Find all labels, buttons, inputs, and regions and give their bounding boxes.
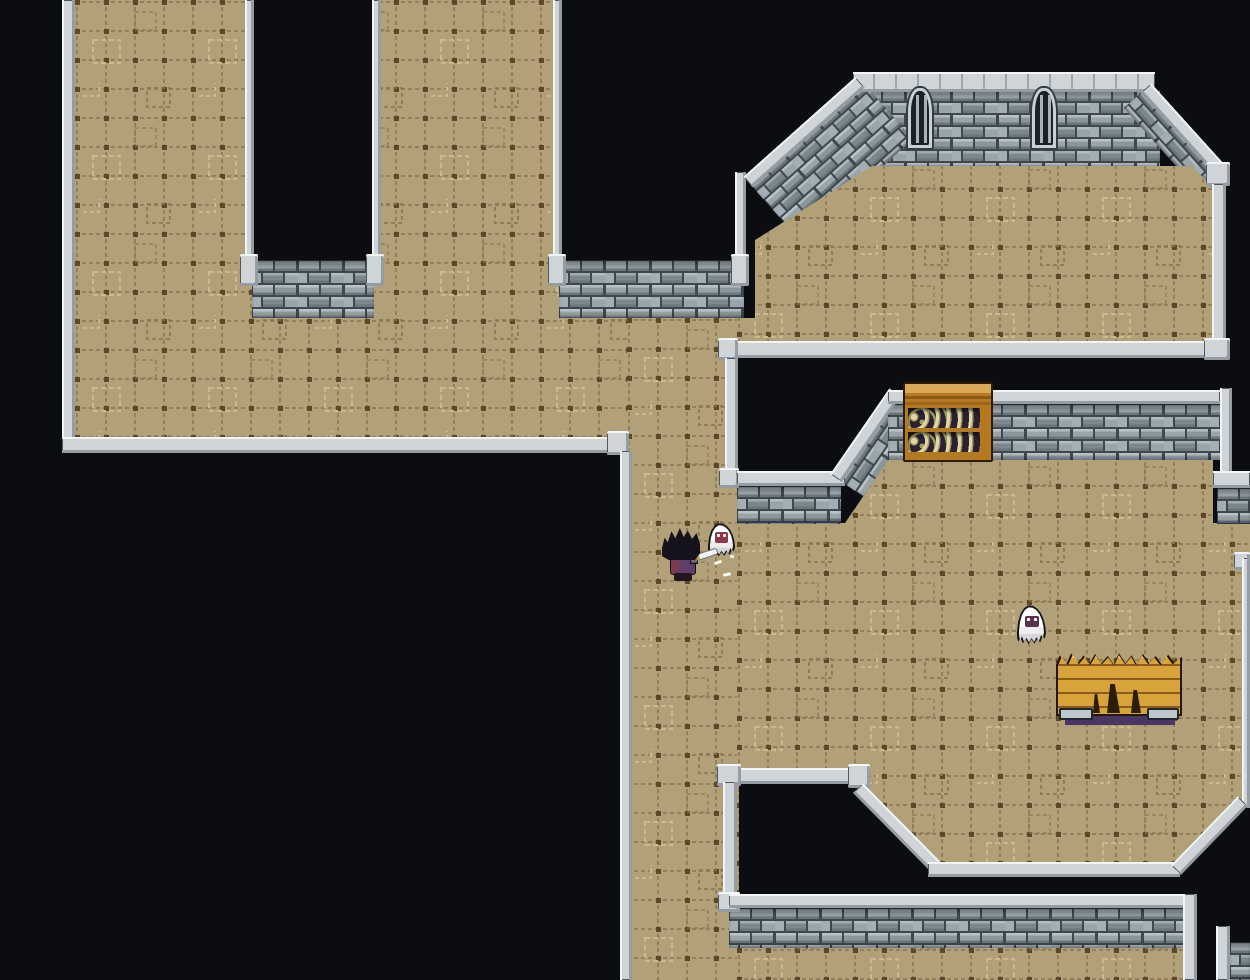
cap-neroom-south [725, 341, 1213, 358]
ghost-face [1025, 616, 1039, 627]
player-hair [662, 528, 700, 560]
wall-east-edge-face [1217, 488, 1250, 524]
cap-north-wall [853, 72, 1155, 92]
game-viewport[interactable] [0, 0, 1250, 980]
broken-table[interactable] [1055, 650, 1185, 732]
table-foot-left [1059, 708, 1093, 720]
player-legs [674, 573, 692, 581]
ghost-eye [717, 534, 720, 537]
ghost-eye [1034, 618, 1037, 621]
window-bar [924, 95, 927, 143]
pillar-west-corner-left [240, 254, 258, 286]
pillar-mid-cap-left [553, 0, 562, 262]
cap-east-wall-upper [1212, 184, 1226, 342]
cap-corridor-west [620, 451, 632, 980]
cap-east-edge-lower [1242, 558, 1250, 808]
cap-pit-northeast-corner [848, 764, 870, 788]
cap-south-wall-right [1183, 894, 1197, 980]
cap-south-wall [729, 894, 1191, 908]
slash-particle [730, 555, 734, 558]
pillar-west-cap-right [372, 0, 381, 262]
wall-south-face [729, 908, 1187, 948]
cap-corridor-east-wall [737, 471, 845, 486]
pillar-west-cap-left [245, 0, 254, 262]
cap-northeast-corner [1206, 162, 1230, 186]
shelf-groove [905, 402, 991, 405]
pillar-mid-cap-right [735, 172, 746, 264]
shelf-row-skulls-bottom [908, 432, 980, 452]
cap-pit-west [723, 782, 737, 900]
cap-westhall-south [62, 437, 624, 453]
pillar-west-void [245, 0, 381, 262]
pillar-mid-corner-left [548, 254, 566, 286]
pillar-mid-void [553, 0, 744, 262]
barred-window-2 [1030, 86, 1058, 150]
pillar-west-corner-right [366, 254, 384, 286]
table-foot-right [1147, 708, 1179, 720]
wall-corridor-east-face [737, 486, 841, 524]
ghost-eye [1027, 618, 1030, 621]
pillar-mid-corner-right [731, 254, 749, 286]
shelf-groove [905, 396, 991, 399]
pillar-mid-face [559, 260, 744, 318]
window-bar [916, 95, 919, 143]
shelf-lintel [905, 384, 991, 393]
wall-southeast-corner-face [1230, 942, 1250, 980]
cap-neroom-south-corner-right [1204, 338, 1230, 360]
cap-west-edge [62, 0, 75, 440]
window-opening [911, 91, 929, 145]
ghost-face [715, 532, 728, 543]
pillar-west-face [252, 260, 374, 318]
ghost-enemy[interactable] [1017, 605, 1046, 645]
window-opening [1035, 91, 1053, 145]
cap-east-edge-wall [1213, 471, 1250, 488]
table-planks [1058, 652, 1180, 714]
cap-shelfroom-north-right [1220, 388, 1232, 473]
cap-neroom-south-corner-left [718, 338, 738, 360]
window-bar [1040, 95, 1043, 143]
skull-shelf[interactable] [903, 382, 993, 462]
cap-corridor-east [725, 358, 738, 474]
barred-window-1 [906, 86, 934, 150]
cap-southeast-corner [1216, 926, 1230, 980]
cap-pit-south-long [928, 862, 1180, 877]
window-bar [1048, 95, 1051, 143]
cap-pit-north [723, 768, 857, 784]
ghost-eye [723, 534, 726, 537]
cap-corridor-east-corner [719, 468, 739, 488]
shelf-row-skulls-top [908, 408, 980, 428]
player-character[interactable] [660, 527, 708, 581]
floor-corridor [627, 318, 737, 980]
